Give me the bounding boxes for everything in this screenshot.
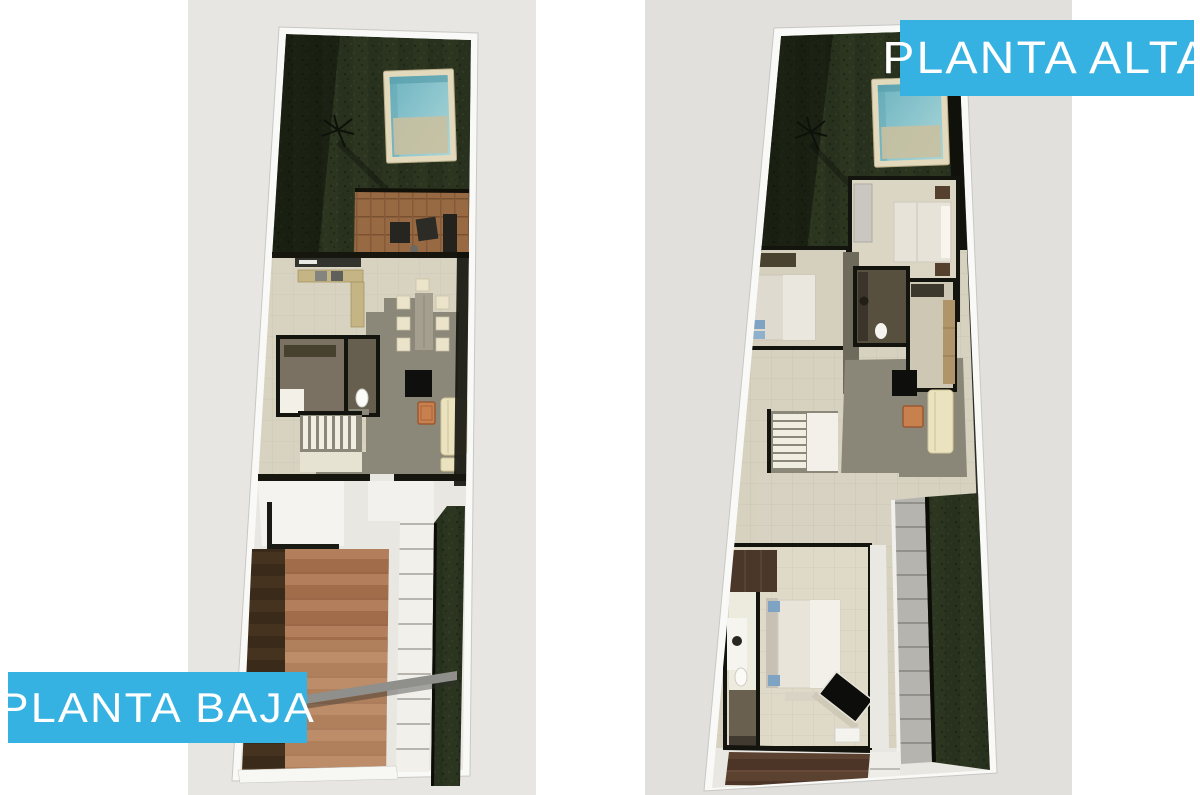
front-door-gap xyxy=(370,474,394,481)
closet xyxy=(729,550,777,592)
pillow xyxy=(768,601,780,612)
bathroom-a xyxy=(855,268,908,345)
pool xyxy=(383,69,456,163)
page: PLANTA BAJA PLANTA ALTA xyxy=(0,0,1200,795)
rear-wall xyxy=(272,252,469,258)
planta-alta-render xyxy=(645,0,1072,795)
dresser xyxy=(835,728,860,742)
planta-alta-floorplan xyxy=(645,0,1072,795)
planta-baja-label-plate: PLANTA BAJA xyxy=(8,672,307,743)
deck-lounge-chair xyxy=(390,222,410,243)
sink xyxy=(860,297,869,306)
vanity xyxy=(280,389,304,413)
pillow xyxy=(768,675,780,686)
kitchen-sink xyxy=(299,260,317,264)
planta-alta-label: PLANTA ALTA xyxy=(883,32,1200,84)
nightstand xyxy=(935,263,950,276)
toilet xyxy=(875,323,887,339)
entry-pad xyxy=(368,481,434,521)
side-walkway xyxy=(891,497,932,764)
deck-table xyxy=(410,245,418,253)
pillow xyxy=(753,331,765,339)
deck-lounge-chair xyxy=(416,217,439,242)
deck-bench xyxy=(443,214,457,255)
coffee-table xyxy=(903,406,923,427)
planta-alta-label-plate: PLANTA ALTA xyxy=(900,20,1194,96)
sink xyxy=(732,636,742,646)
closet xyxy=(943,300,955,384)
terrace-strip xyxy=(870,545,889,748)
ensuite-bathroom xyxy=(727,592,760,748)
toilet xyxy=(735,668,747,686)
staircase xyxy=(298,411,362,472)
tv-unit xyxy=(405,370,432,397)
bath-counter xyxy=(858,272,868,341)
side-garden xyxy=(431,506,465,786)
front-wall xyxy=(258,474,466,481)
wardrobe xyxy=(854,184,872,242)
wood-deck xyxy=(354,188,469,258)
cooktop xyxy=(315,271,327,281)
sofa xyxy=(928,390,953,453)
pool-shallow-ledge xyxy=(881,125,941,159)
toilet xyxy=(356,389,368,407)
appliance xyxy=(331,271,343,281)
master-bedroom xyxy=(725,545,876,748)
staircase xyxy=(767,409,838,475)
guest-bathroom xyxy=(278,337,378,415)
house-interior xyxy=(258,252,469,486)
planta-baja-label: PLANTA BAJA xyxy=(0,684,316,732)
pool-shallow-ledge xyxy=(393,116,448,155)
tv-unit xyxy=(892,370,917,396)
nightstand xyxy=(935,186,950,199)
